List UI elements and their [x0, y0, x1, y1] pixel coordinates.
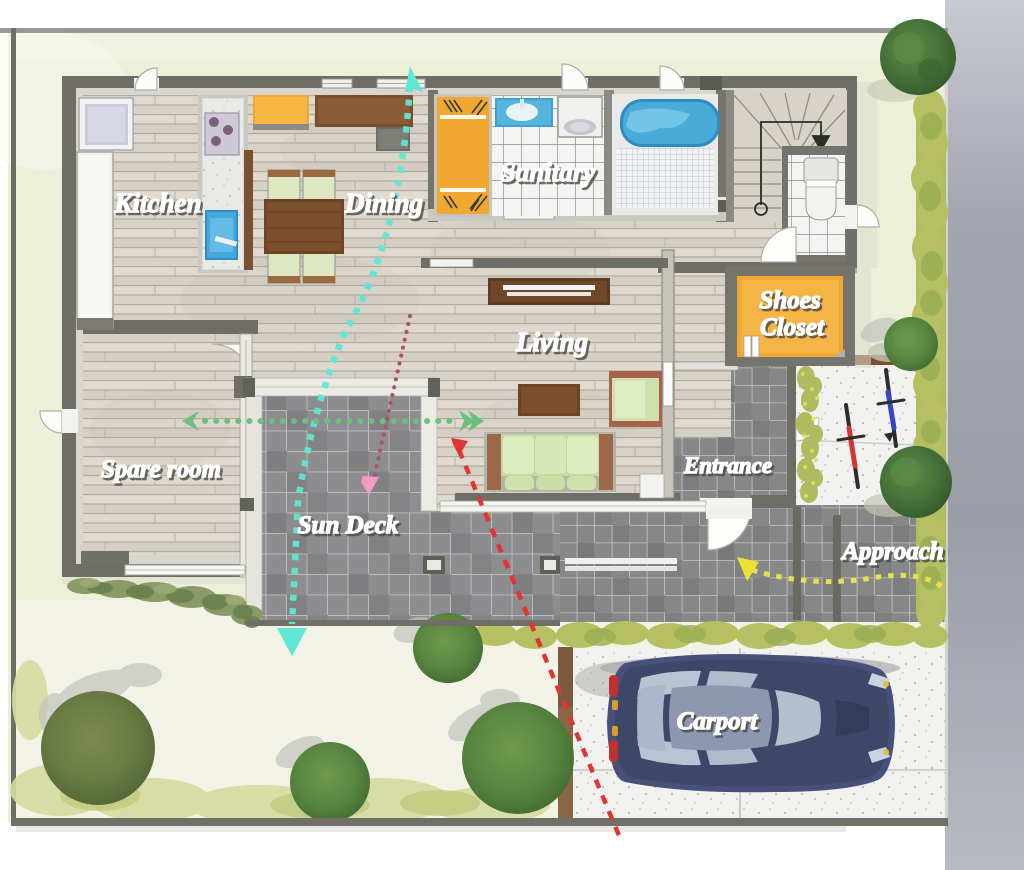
- svg-text:Living: Living: [515, 327, 588, 357]
- svg-text:Closet: Closet: [760, 314, 825, 341]
- svg-text:Shoes: Shoes: [759, 287, 820, 314]
- svg-text:Entrance: Entrance: [683, 453, 772, 478]
- svg-text:Carport: Carport: [677, 708, 759, 735]
- svg-text:Sun Deck: Sun Deck: [298, 512, 399, 539]
- svg-text:Kitchen: Kitchen: [113, 188, 201, 218]
- svg-text:Dining: Dining: [344, 188, 423, 218]
- svg-text:Sanitary: Sanitary: [501, 157, 597, 187]
- svg-text:Spare room: Spare room: [101, 456, 221, 483]
- svg-text:Approach: Approach: [840, 538, 943, 565]
